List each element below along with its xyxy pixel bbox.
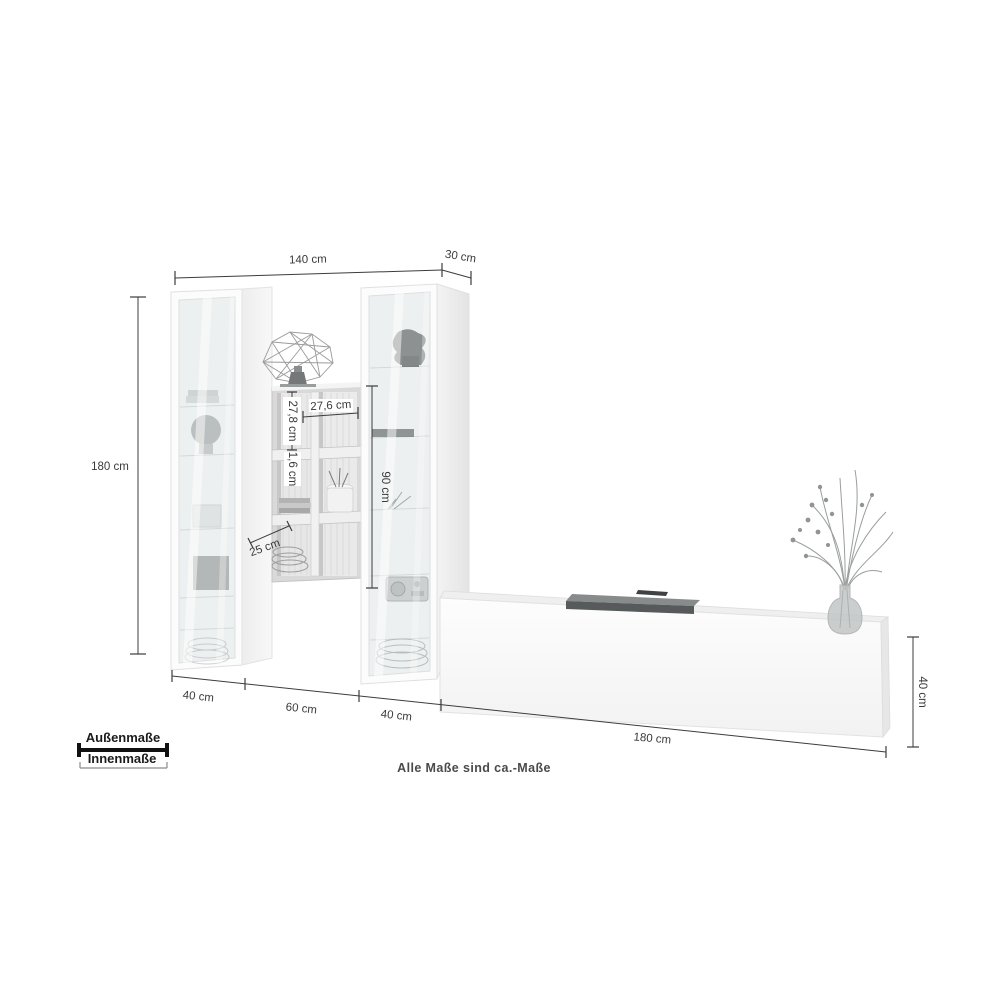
diagram-canvas: 140 cm 30 cm 180 cm 90 cm 27,8 cm 1,6 cm [0,0,1000,1000]
dim-lowboard-height: 40 cm [907,637,928,747]
wire-lamp-decor [263,332,333,387]
product-dimension-diagram: 140 cm 30 cm 180 cm 90 cm 27,8 cm 1,6 cm [0,0,1000,1000]
legend-inner-label: Innenmaße [88,751,157,766]
measure-legend: Außenmaße Innenmaße [79,730,167,768]
dim-label-vitrine-left-width: 40 cm [182,689,214,704]
legend-outer-label: Außenmaße [86,730,160,745]
vase-decor [791,470,893,634]
dim-label-lowboard-length: 180 cm [633,731,672,746]
dim-label-vitrine-inner-height: 90 cm [379,471,391,502]
dim-total-height: 180 cm [91,297,146,654]
dim-label-shelf-inner-height: 27,8 cm [286,401,298,442]
dim-label-depth: 30 cm [444,249,477,266]
lowboard [440,591,890,737]
measurements-note: Alle Maße sind ca.-Maße [397,761,551,775]
dim-label-total-height: 180 cm [91,461,129,473]
dim-label-vitrine-right-width: 40 cm [380,708,412,723]
dim-shelf-inner-height: 27,8 cm [283,392,301,450]
dim-label-lowboard-height: 40 cm [916,676,928,707]
dim-label-panel-thickness: 1,6 cm [286,452,298,487]
dim-panel-thickness: 1,6 cm [284,452,301,487]
dim-depth: 30 cm [442,249,477,285]
dim-label-shelf-inner-width: 27,6 cm [310,399,351,413]
dim-total-width: 140 cm [175,254,442,285]
dim-label-total-width: 140 cm [289,254,327,267]
dim-label-shelf-unit-width: 60 cm [285,701,317,716]
left-vitrine [171,287,272,670]
